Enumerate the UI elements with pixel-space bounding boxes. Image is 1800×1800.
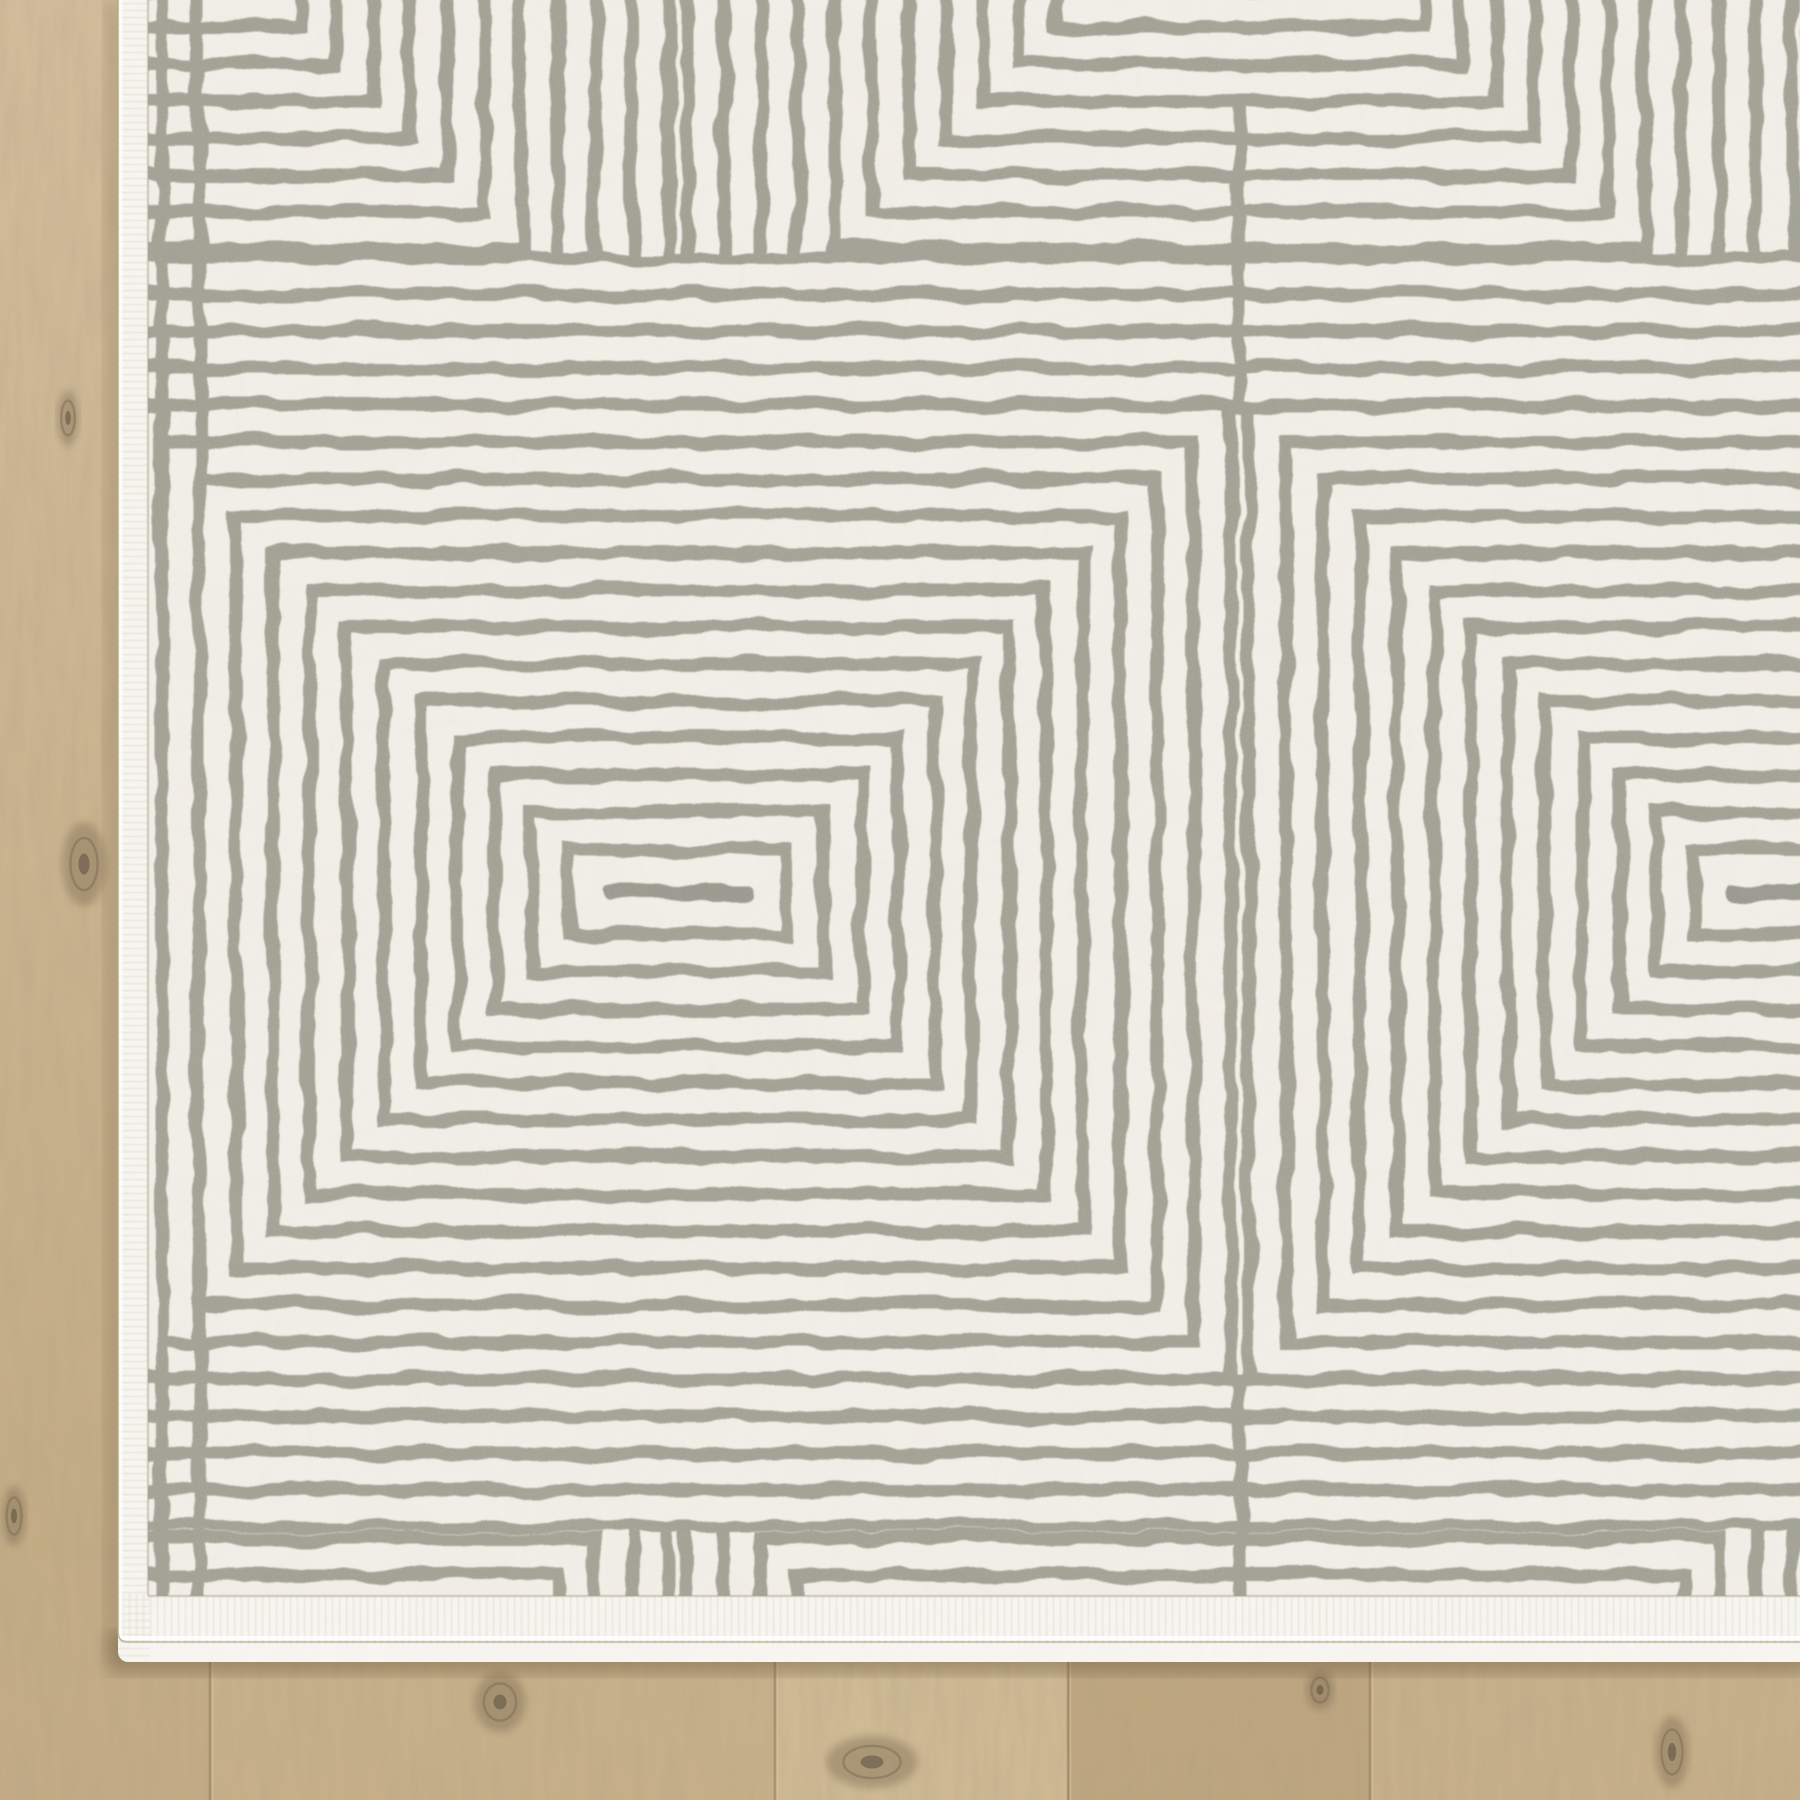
scene-photo [0, 0, 1800, 1800]
pile-fuzz-overlay [118, 0, 1800, 1662]
wood-knot-core [1317, 1685, 1324, 1695]
wood-knot-core [79, 854, 90, 875]
wood-knot-core [65, 411, 71, 425]
rug-product-photo [0, 0, 1800, 1800]
wood-knot-core [11, 1509, 17, 1524]
rug [0, 0, 1800, 1800]
wood-knot-core [861, 1756, 884, 1769]
wood-knot-core [1668, 1743, 1677, 1761]
wood-knot-core [494, 1695, 507, 1710]
